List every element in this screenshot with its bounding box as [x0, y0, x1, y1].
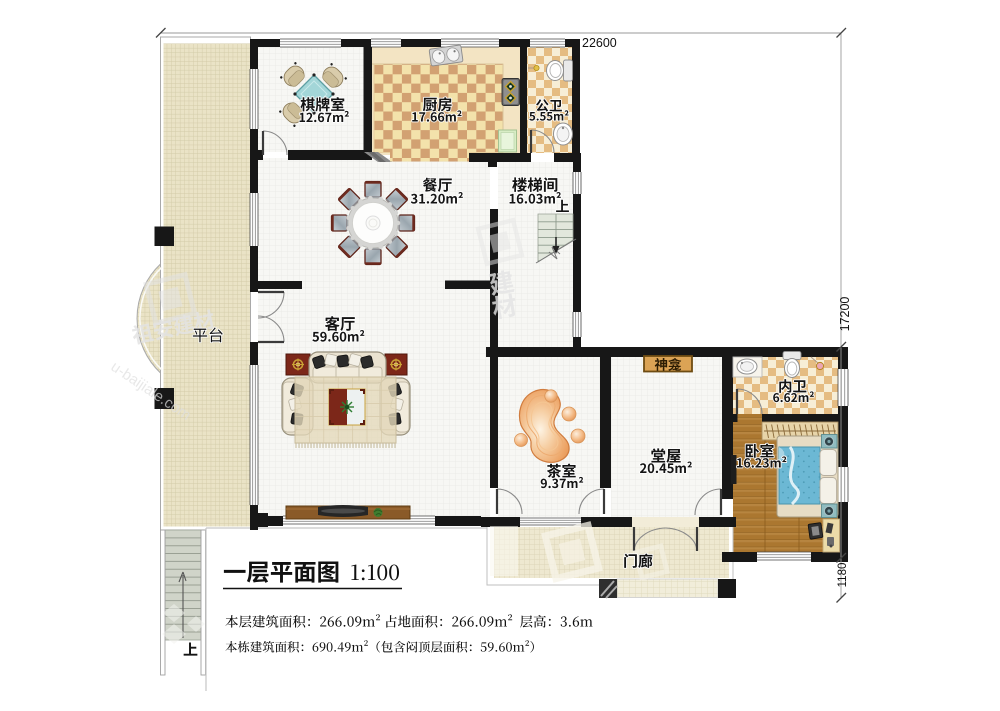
- svg-text:17200: 17200: [838, 297, 852, 332]
- svg-text:22600: 22600: [582, 36, 617, 50]
- svg-text:1180: 1180: [837, 563, 849, 588]
